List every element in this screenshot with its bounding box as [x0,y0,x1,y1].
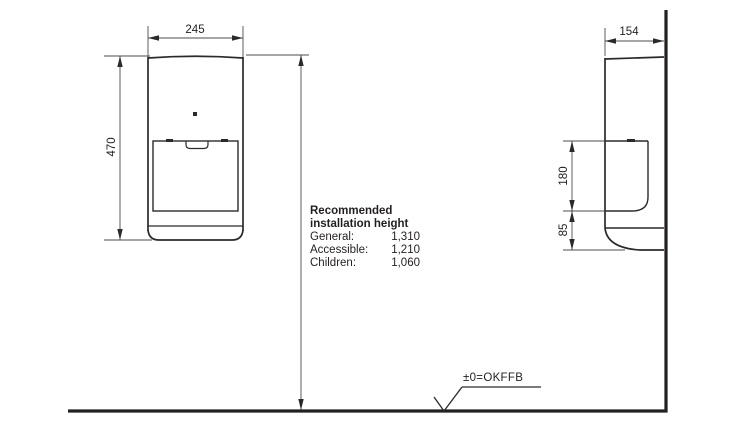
side-cavity-front [632,141,648,211]
arrowhead-down [117,229,122,240]
note-row-value: 1,210 [391,244,420,257]
technical-drawing-page: 245 470 154 180 85 ±0=OKFFB Recommended … [0,0,739,432]
installation-height-note: Recommended installation height General:… [310,205,420,270]
datum-label: ±0=OKFFB [463,372,523,384]
note-row-label: Accessible: [310,244,368,257]
arrowhead-left [605,38,616,43]
note-row-label: Children: [310,257,356,270]
note-row-children: Children: 1,060 [310,257,420,270]
dim-installation-height [246,55,309,410]
side-opening-dim-label: 180 [558,161,570,191]
front-view-details [166,112,228,142]
front-height-dim-label: 470 [106,132,118,162]
arrowhead-down [569,239,574,250]
front-width-dim-label: 245 [170,24,220,36]
note-row-value: 1,310 [391,231,420,244]
side-view-details [627,139,635,142]
front-bottom-edge [148,230,243,240]
arrowhead-right [653,38,664,43]
side-depth-dim-label: 154 [604,26,654,38]
arrowhead-up [569,211,574,222]
front-view-cavity [153,141,238,211]
note-title-line2: installation height [310,218,420,231]
side-bottom-curve [605,228,640,250]
note-row-general: General: 1,310 [310,231,420,244]
side-view-outline [605,57,664,250]
arrowhead-down [569,200,574,211]
arrowhead-left [148,35,159,40]
side-nozzle-tick [627,139,635,142]
note-row-value: 1,060 [391,257,420,270]
cavity-opening [153,141,238,211]
arrowhead-up [298,55,303,66]
front-top-edge [148,56,243,58]
nozzle-slot-right [221,139,228,142]
sensor-dot [193,112,197,116]
side-base-dim-label: 85 [558,215,570,245]
arrowhead-up [117,56,122,67]
arrowhead-up [569,141,574,152]
note-row-label: General: [310,231,354,244]
arrowhead-down [298,399,303,410]
datum-symbol [434,387,541,411]
note-title-line1: Recommended [310,205,420,218]
datum-check-mark [434,387,462,411]
cavity-center-tab [186,141,208,149]
note-row-accessible: Accessible: 1,210 [310,244,420,257]
arrowhead-right [232,35,243,40]
side-top-edge [605,57,664,59]
nozzle-slot-left [166,139,173,142]
